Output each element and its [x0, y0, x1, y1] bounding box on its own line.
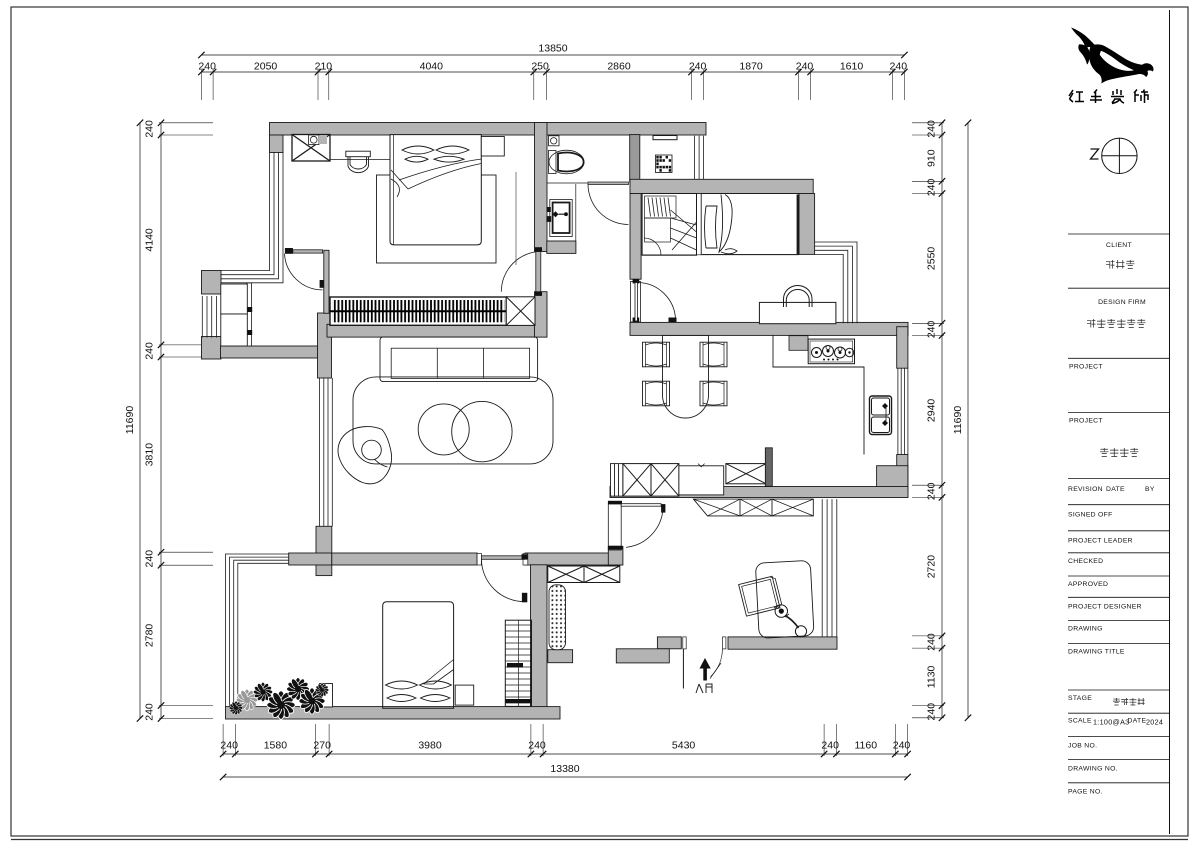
svg-text:240: 240 [926, 482, 938, 500]
svg-text:2050: 2050 [254, 61, 278, 73]
svg-text:13380: 13380 [550, 763, 579, 775]
svg-text:240: 240 [198, 61, 216, 73]
svg-text:240: 240 [144, 550, 156, 568]
svg-text:240: 240 [144, 703, 156, 721]
svg-text:CHECKED: CHECKED [1068, 558, 1103, 565]
svg-text:DRAWING: DRAWING [1068, 626, 1103, 633]
svg-text:JOB NO.: JOB NO. [1068, 743, 1097, 750]
svg-text:3980: 3980 [418, 740, 442, 752]
svg-text:DESIGN FIRM: DESIGN FIRM [1098, 299, 1146, 306]
svg-text:240: 240 [926, 178, 938, 196]
svg-text:PAGE NO.: PAGE NO. [1068, 789, 1103, 796]
svg-text:1580: 1580 [264, 740, 288, 752]
svg-text:1610: 1610 [840, 61, 864, 73]
svg-text:2940: 2940 [926, 399, 938, 423]
svg-text:250: 250 [531, 61, 549, 73]
svg-text:CLIENT: CLIENT [1106, 242, 1132, 249]
svg-text:4040: 4040 [420, 61, 444, 73]
svg-text:240: 240 [821, 740, 839, 752]
svg-text:240: 240 [220, 740, 238, 752]
svg-text:240: 240 [796, 61, 814, 73]
svg-text:240: 240 [926, 120, 938, 138]
svg-text:4140: 4140 [144, 228, 156, 252]
svg-text:240: 240 [144, 342, 156, 360]
svg-text:DATE: DATE [1128, 718, 1147, 725]
svg-text:REVISION: REVISION [1068, 486, 1103, 493]
svg-text:1:100@A3: 1:100@A3 [1093, 718, 1129, 727]
svg-text:910: 910 [926, 149, 938, 167]
svg-text:2550: 2550 [926, 247, 938, 271]
svg-text:DRAWING TITLE: DRAWING TITLE [1068, 649, 1125, 656]
svg-text:13850: 13850 [538, 43, 567, 55]
svg-text:1130: 1130 [926, 665, 938, 688]
svg-text:2024: 2024 [1146, 718, 1163, 727]
svg-text:1870: 1870 [739, 61, 763, 73]
svg-text:APPROVED: APPROVED [1068, 581, 1108, 588]
svg-text:210: 210 [315, 61, 333, 73]
svg-text:270: 270 [313, 740, 331, 752]
svg-text:DRAWING NO.: DRAWING NO. [1068, 766, 1118, 773]
svg-text:2780: 2780 [144, 624, 156, 648]
svg-text:SCALE: SCALE [1068, 718, 1092, 725]
svg-text:DATE: DATE [1106, 486, 1125, 493]
svg-text:240: 240 [689, 61, 707, 73]
svg-text:11690: 11690 [124, 406, 136, 435]
svg-text:2720: 2720 [926, 555, 938, 579]
svg-text:STAGE: STAGE [1068, 695, 1092, 702]
svg-text:PROJECT DESIGNER: PROJECT DESIGNER [1068, 604, 1142, 611]
svg-text:PROJECT: PROJECT [1069, 364, 1103, 371]
svg-text:3810: 3810 [144, 443, 156, 467]
svg-text:240: 240 [926, 320, 938, 338]
svg-text:2860: 2860 [607, 61, 631, 73]
svg-text:1160: 1160 [855, 740, 878, 752]
svg-text:240: 240 [144, 120, 156, 138]
svg-text:BY: BY [1145, 486, 1155, 493]
svg-text:5430: 5430 [672, 740, 696, 752]
svg-text:240: 240 [893, 740, 911, 752]
svg-text:240: 240 [528, 740, 546, 752]
svg-text:SIGNED OFF: SIGNED OFF [1068, 512, 1113, 519]
svg-text:240: 240 [926, 633, 938, 651]
svg-text:240: 240 [890, 61, 908, 73]
svg-text:PROJECT: PROJECT [1069, 418, 1103, 425]
svg-text:11690: 11690 [952, 406, 964, 435]
svg-text:240: 240 [926, 703, 938, 721]
svg-text:PROJECT LEADER: PROJECT LEADER [1068, 538, 1133, 545]
